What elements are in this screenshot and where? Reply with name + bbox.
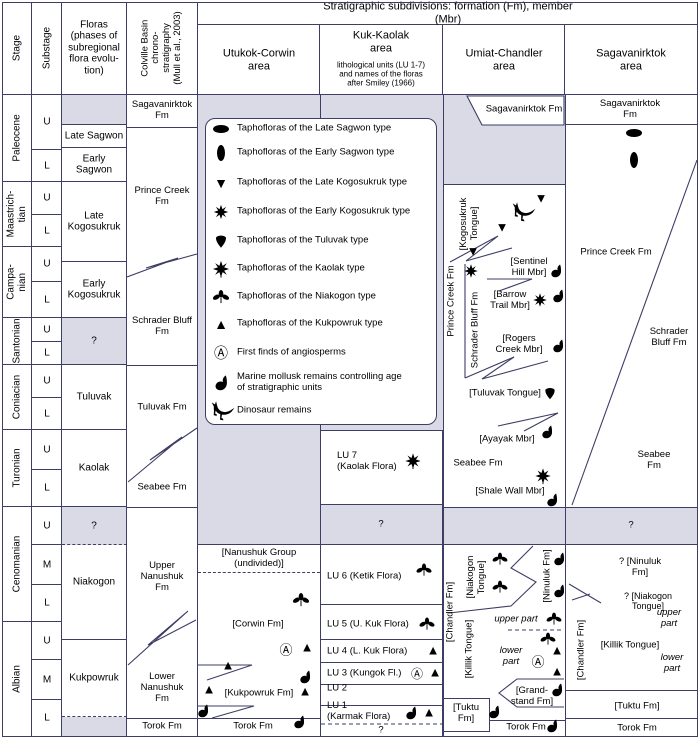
stratigraphic-chart: Taphofloras of the Late Sagwon type Taph… [0,0,700,739]
chart-outer-frame [2,2,698,737]
